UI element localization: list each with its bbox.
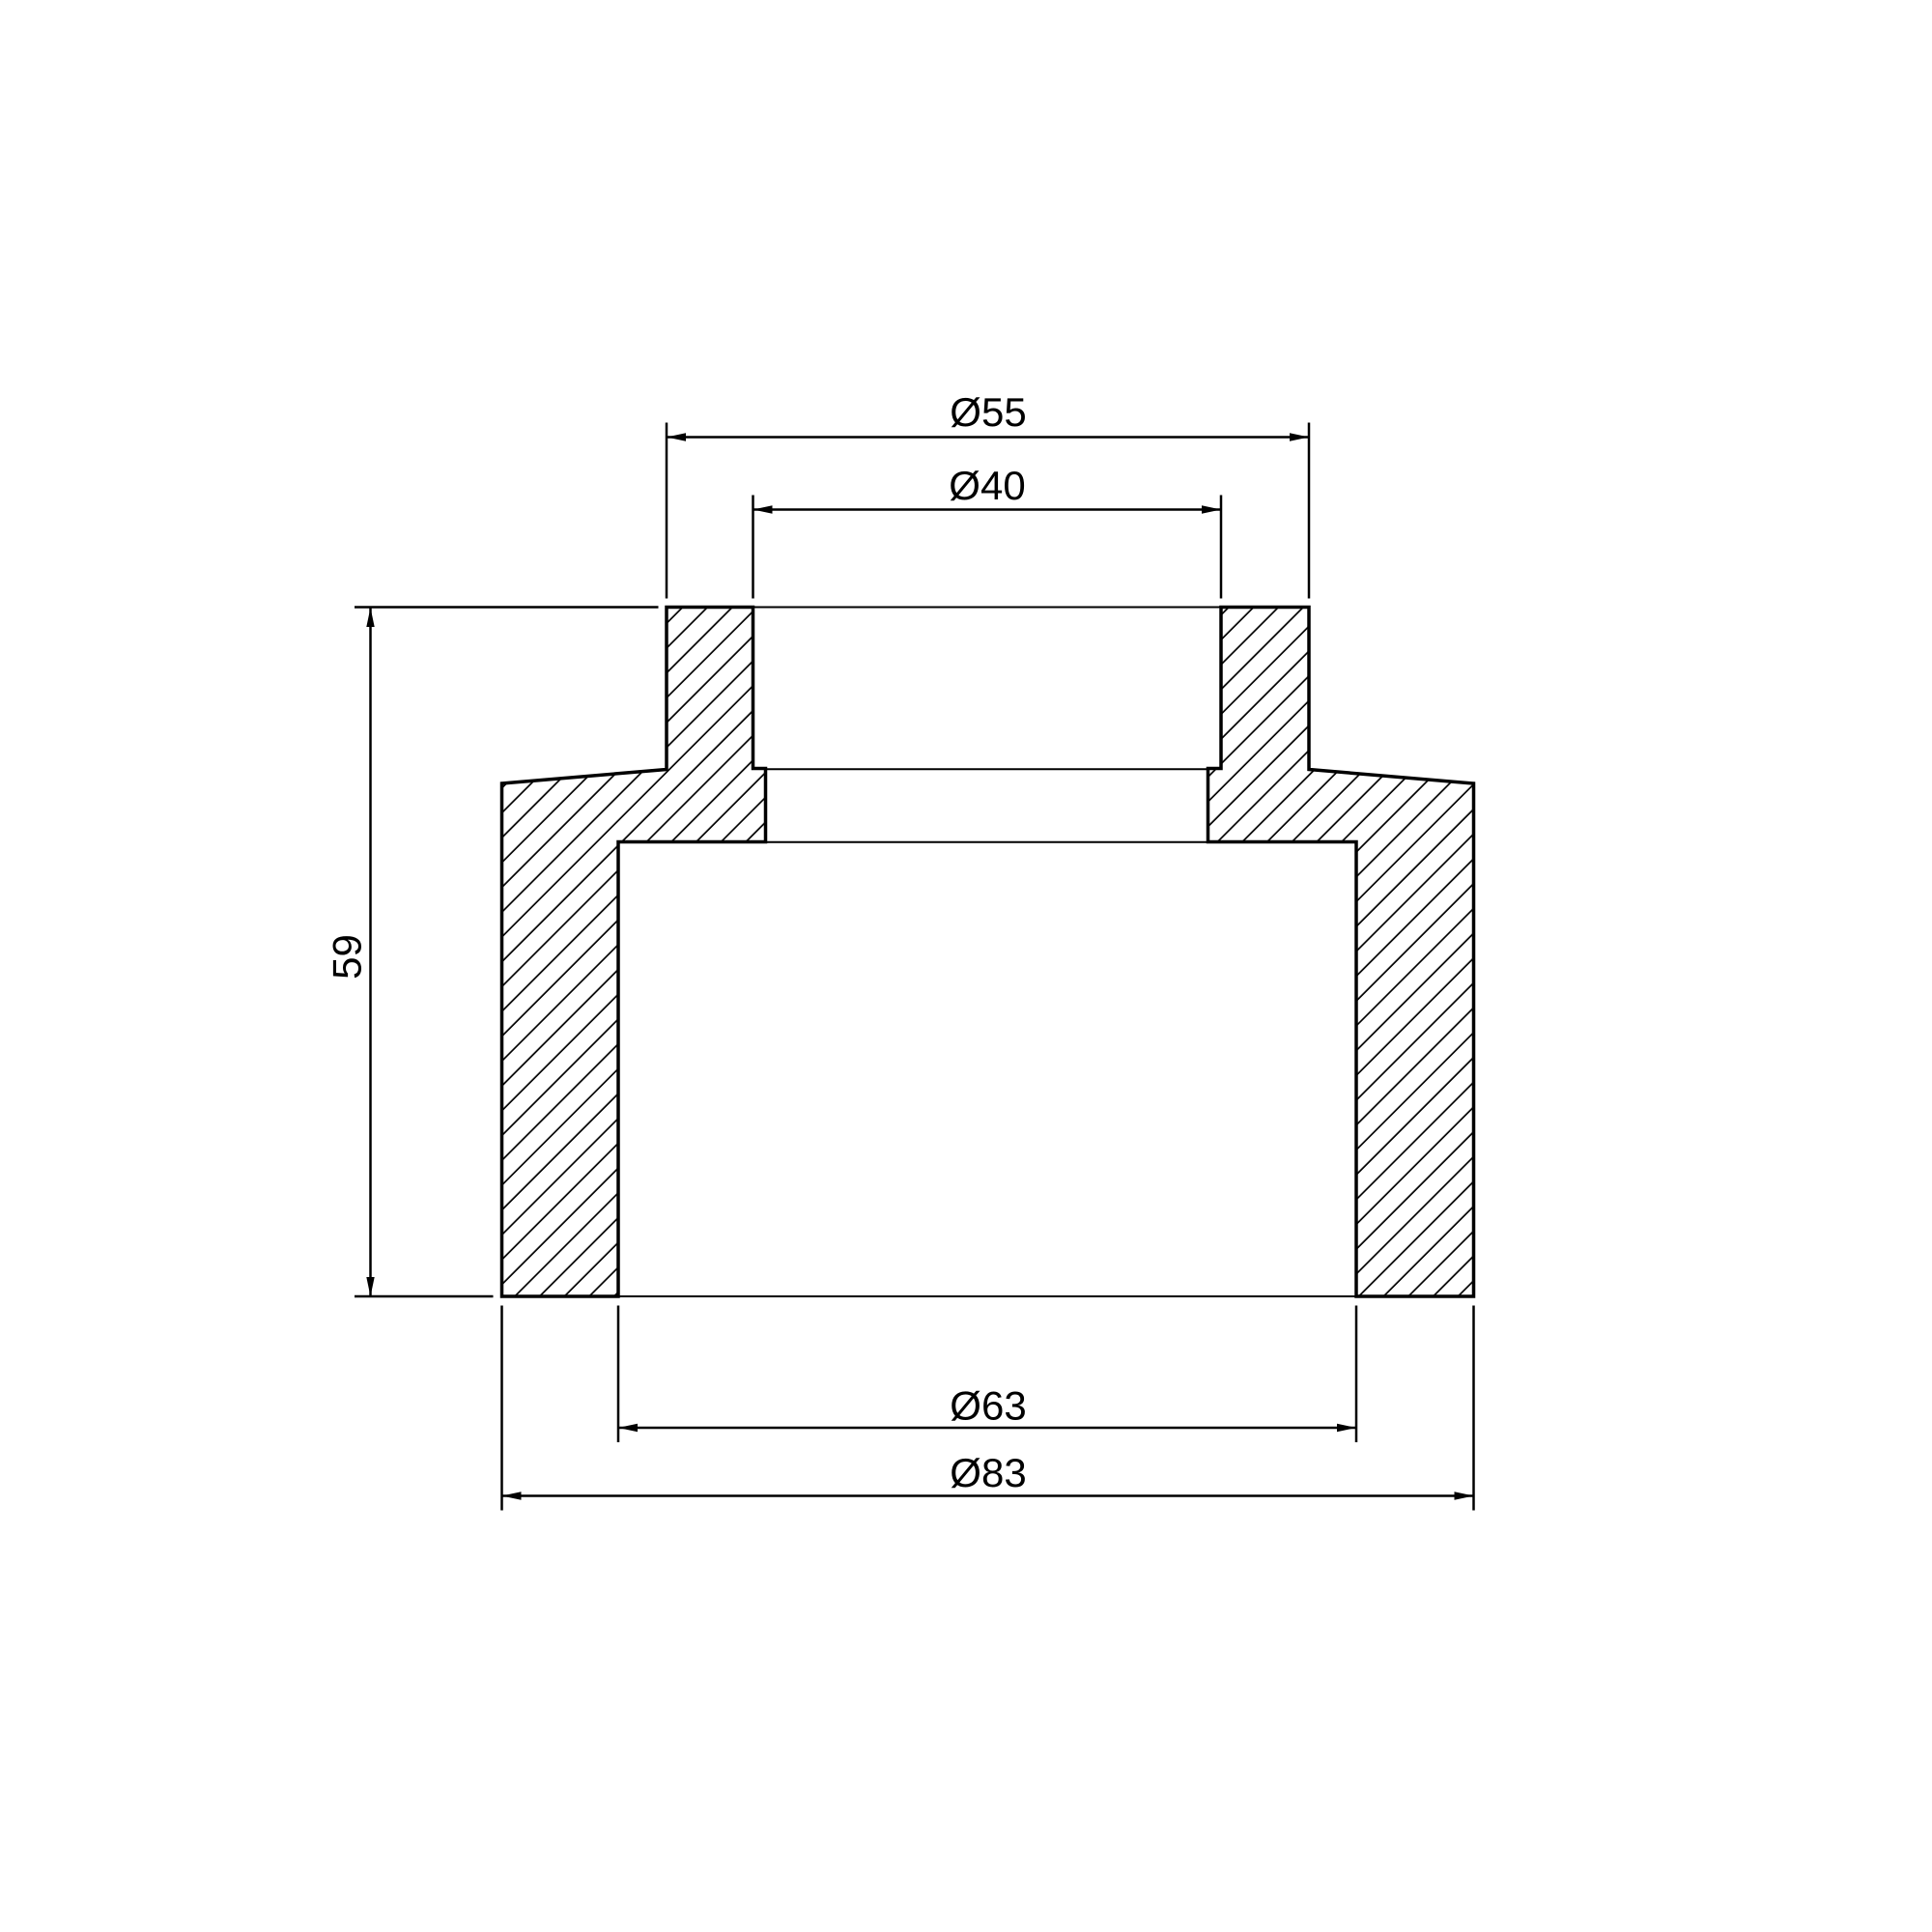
svg-text:Ø63: Ø63: [950, 1383, 1026, 1429]
svg-text:Ø55: Ø55: [950, 389, 1026, 435]
svg-text:Ø83: Ø83: [950, 1450, 1026, 1495]
svg-text:Ø40: Ø40: [949, 463, 1025, 508]
svg-text:59: 59: [325, 934, 370, 980]
